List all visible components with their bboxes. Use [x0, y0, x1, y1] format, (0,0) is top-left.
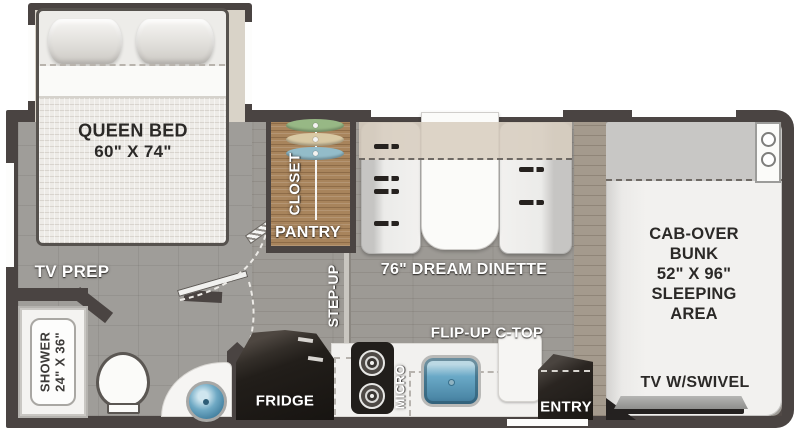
slideout-window-left-icon	[28, 25, 35, 101]
flip-up-counter	[498, 332, 542, 402]
tv-icon	[614, 396, 748, 409]
tv-swivel-label: TV W/SWIVEL	[640, 374, 749, 392]
cab-label-line1: CAB-OVER	[606, 224, 782, 244]
queen-bed-label: QUEEN BED	[78, 121, 188, 142]
slideout-window-right-icon	[245, 22, 252, 104]
step-up-label: STEP-UP	[325, 265, 341, 328]
entry-label: ENTRY	[540, 399, 592, 416]
hanger-hook-icon	[313, 123, 318, 128]
rv-floorplan: QUEEN BED 60" X 74" TV PREP SHOWER 24" X…	[0, 0, 800, 430]
bed-sheet	[39, 66, 226, 98]
shower-label-line2: 24" X 36"	[53, 332, 68, 392]
flip-up-ctop-label: FLIP-UP C-TOP	[431, 325, 544, 342]
counter-dash-v1	[334, 357, 336, 415]
fridge-label: FRIDGE	[256, 393, 314, 410]
seatbelt-icon	[374, 221, 399, 226]
burner-icon	[359, 350, 385, 376]
micro-label: MICRO	[393, 365, 408, 410]
pantry-label: PANTRY	[275, 224, 341, 242]
hanging-shirt-icon	[286, 133, 344, 146]
cab-label-line4: SLEEPING	[606, 284, 782, 304]
seatbelt-icon	[374, 189, 399, 194]
shower-label-line1: SHOWER	[38, 332, 53, 392]
seatbelt-icon	[519, 200, 544, 205]
burner-center-icon	[370, 394, 374, 398]
step-edge	[344, 253, 351, 343]
seatbelt-icon	[519, 167, 544, 172]
hanger-hook-icon	[313, 137, 318, 142]
cab-label-line3: 52" X 96"	[606, 264, 782, 284]
shower-label: SHOWER 24" X 36"	[38, 332, 67, 392]
cab-label-line5: AREA	[606, 304, 782, 324]
sink-drain-icon	[448, 379, 455, 386]
counter-dash-h1	[334, 357, 352, 359]
entry-dash	[541, 370, 590, 372]
left-wall-window-icon	[6, 163, 14, 267]
toilet-icon	[96, 352, 150, 408]
entry-door-opening-icon	[507, 419, 588, 426]
overhead-bunk-band	[359, 122, 572, 160]
cupholder-icon	[761, 152, 776, 167]
toilet-base-icon	[107, 403, 140, 414]
tv-prep-label: TV PREP	[35, 262, 110, 282]
pillow-right	[136, 19, 214, 64]
queen-bed-size-label: 60" X 74"	[94, 142, 171, 162]
top-window-cab-icon	[632, 110, 736, 117]
cupholder-icon	[761, 132, 776, 147]
hanging-shirt-icon	[286, 119, 344, 132]
pillow-left	[48, 19, 122, 64]
seatbelt-icon	[374, 176, 399, 181]
vanity-drain-icon	[203, 399, 209, 405]
counter-dash-v2	[409, 371, 411, 416]
dinette-label: 76" DREAM DINETTE	[381, 261, 547, 279]
cab-over-bunk-label: CAB-OVER BUNK 52" X 96" SLEEPING AREA	[606, 224, 782, 324]
closet-label: CLOSET	[287, 153, 304, 216]
seatbelt-icon	[374, 144, 399, 149]
burner-center-icon	[370, 361, 374, 365]
burner-icon	[359, 383, 385, 409]
hanger-hook-icon	[313, 151, 318, 156]
cab-label-line2: BUNK	[606, 244, 782, 264]
